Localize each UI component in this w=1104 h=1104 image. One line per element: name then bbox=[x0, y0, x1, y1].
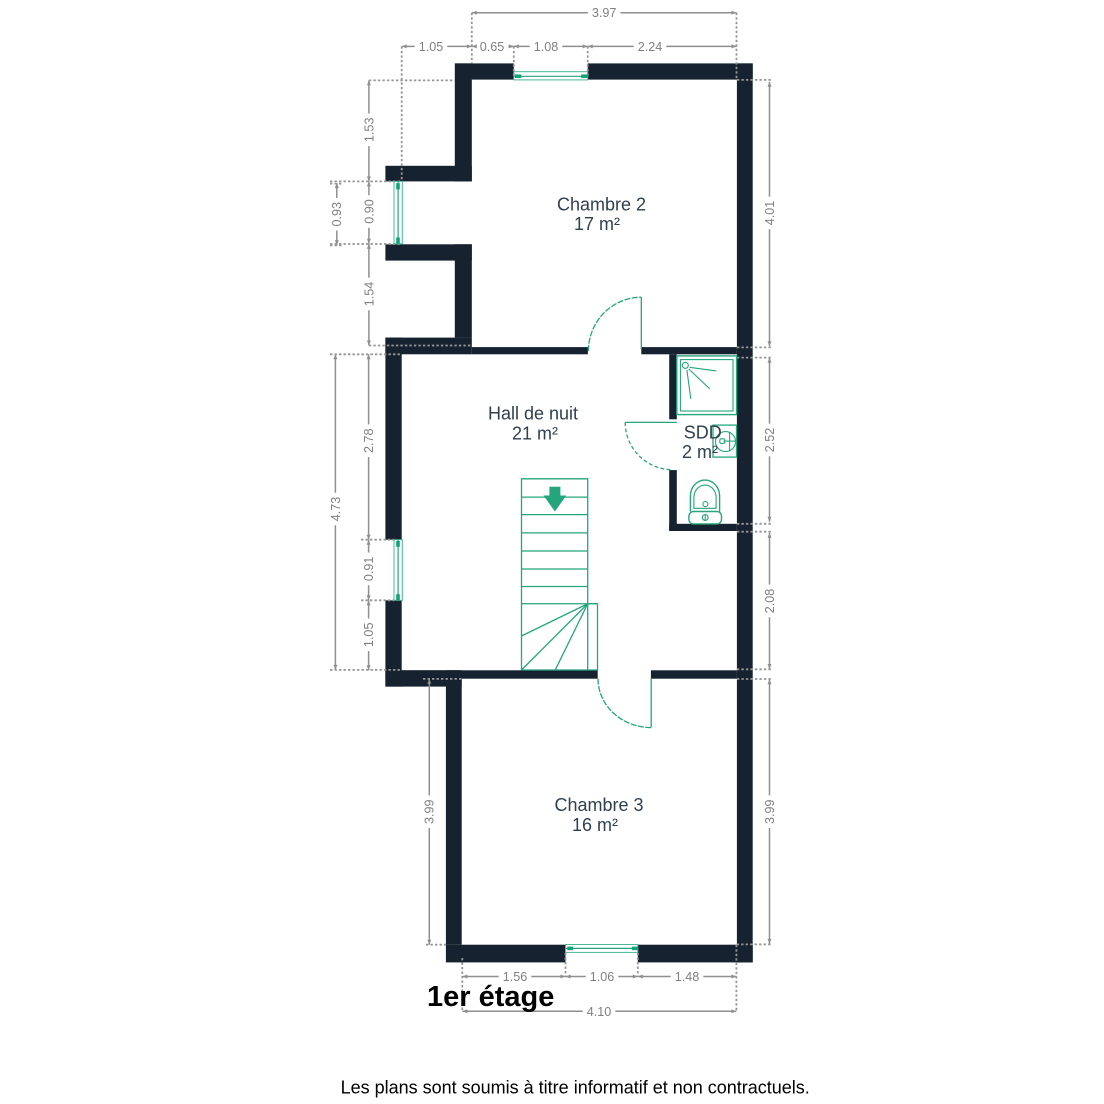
svg-text:Chambre 2: Chambre 2 bbox=[557, 194, 646, 214]
svg-text:0.90: 0.90 bbox=[362, 199, 376, 224]
svg-text:17 m²: 17 m² bbox=[574, 214, 620, 234]
svg-text:0.91: 0.91 bbox=[362, 557, 376, 582]
svg-text:Chambre 3: Chambre 3 bbox=[554, 795, 643, 815]
svg-text:SDD: SDD bbox=[684, 422, 722, 442]
svg-text:2.08: 2.08 bbox=[763, 589, 777, 614]
svg-text:1.54: 1.54 bbox=[362, 282, 376, 307]
svg-text:1.05: 1.05 bbox=[362, 623, 376, 648]
svg-text:0.93: 0.93 bbox=[330, 202, 344, 227]
svg-text:Hall de nuit: Hall de nuit bbox=[488, 404, 578, 424]
svg-text:4.01: 4.01 bbox=[763, 201, 777, 226]
svg-text:2.78: 2.78 bbox=[362, 428, 376, 453]
svg-text:21 m²: 21 m² bbox=[512, 423, 558, 443]
svg-text:0.65: 0.65 bbox=[480, 40, 505, 54]
svg-text:2 m²: 2 m² bbox=[682, 442, 718, 462]
svg-text:3.99: 3.99 bbox=[763, 799, 777, 824]
svg-text:16 m²: 16 m² bbox=[572, 815, 618, 835]
svg-text:2.24: 2.24 bbox=[638, 40, 663, 54]
svg-text:1.06: 1.06 bbox=[590, 970, 615, 984]
svg-text:1.08: 1.08 bbox=[534, 40, 559, 54]
svg-text:1.05: 1.05 bbox=[419, 40, 444, 54]
svg-text:4.10: 4.10 bbox=[587, 1005, 612, 1019]
svg-text:1er étage: 1er étage bbox=[427, 981, 554, 1013]
svg-text:3.99: 3.99 bbox=[423, 799, 437, 824]
svg-text:1.53: 1.53 bbox=[362, 118, 376, 143]
svg-text:3.97: 3.97 bbox=[592, 6, 617, 20]
svg-text:2.52: 2.52 bbox=[763, 428, 777, 453]
svg-text:4.73: 4.73 bbox=[329, 497, 343, 522]
svg-text:1.48: 1.48 bbox=[675, 970, 700, 984]
svg-text:Les plans sont soumis à titre: Les plans sont soumis à titre informatif… bbox=[341, 1077, 810, 1097]
